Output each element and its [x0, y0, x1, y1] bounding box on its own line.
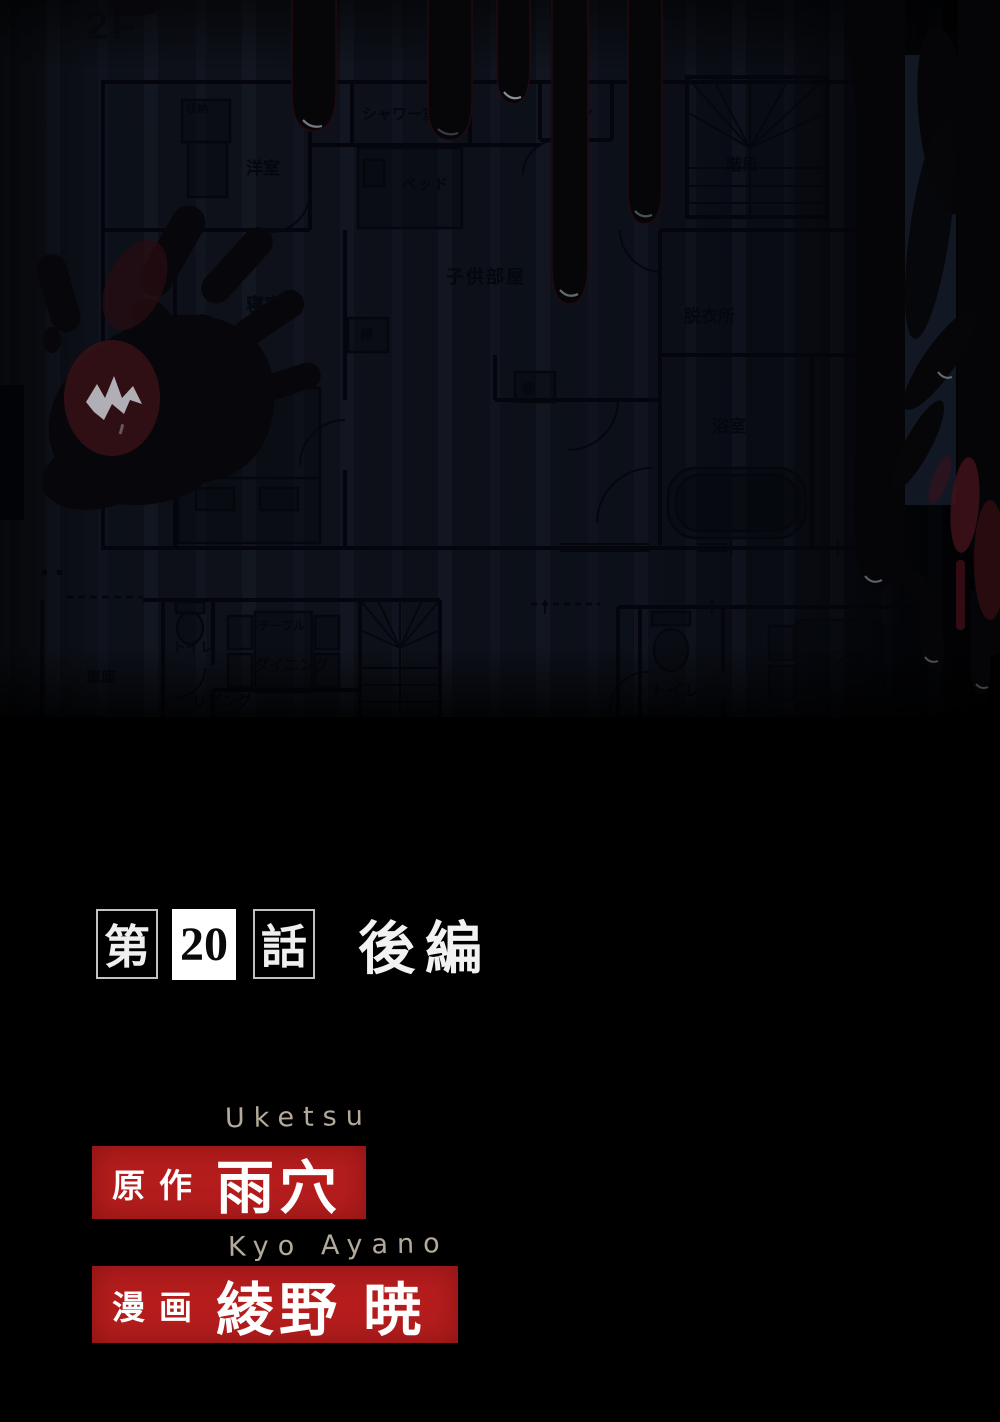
author-credit-box: 原作 雨穴 — [92, 1146, 366, 1219]
artist-romaji-label: Kyo Ayano — [228, 1228, 449, 1263]
chapter-part-label: 後編 — [358, 903, 492, 985]
author-romaji-label: Uketsu — [225, 1101, 372, 1135]
blood-drips-icon — [292, 0, 662, 304]
artist-role-label: 漫画 — [112, 1281, 206, 1329]
drip-glints — [303, 92, 652, 296]
chapter-prefix-box: 第 — [96, 909, 158, 979]
chapter-title: 第 20 話 後編 — [96, 903, 492, 985]
artist-name-label: 綾野 暁 — [216, 1263, 426, 1347]
author-role-label: 原作 — [112, 1159, 206, 1207]
artist-credit-box: 漫画 綾野 暁 — [92, 1266, 458, 1343]
manga-title-page: 2F 収納 シャワー室 トイレ 洋室 ベッド 子供部屋 階段 寝室 棚 棚 脱衣… — [0, 0, 1000, 1422]
author-name-label: 雨穴 — [216, 1141, 342, 1225]
chapter-suffix-box: 話 — [253, 909, 315, 979]
bloody-handprint-icon — [32, 0, 324, 525]
chapter-number-box: 20 — [172, 909, 236, 980]
floorplan-background: 2F 収納 シャワー室 トイレ 洋室 ベッド 子供部屋 階段 寝室 棚 棚 脱衣… — [0, 0, 1000, 717]
blood-overlay — [0, 0, 1000, 717]
